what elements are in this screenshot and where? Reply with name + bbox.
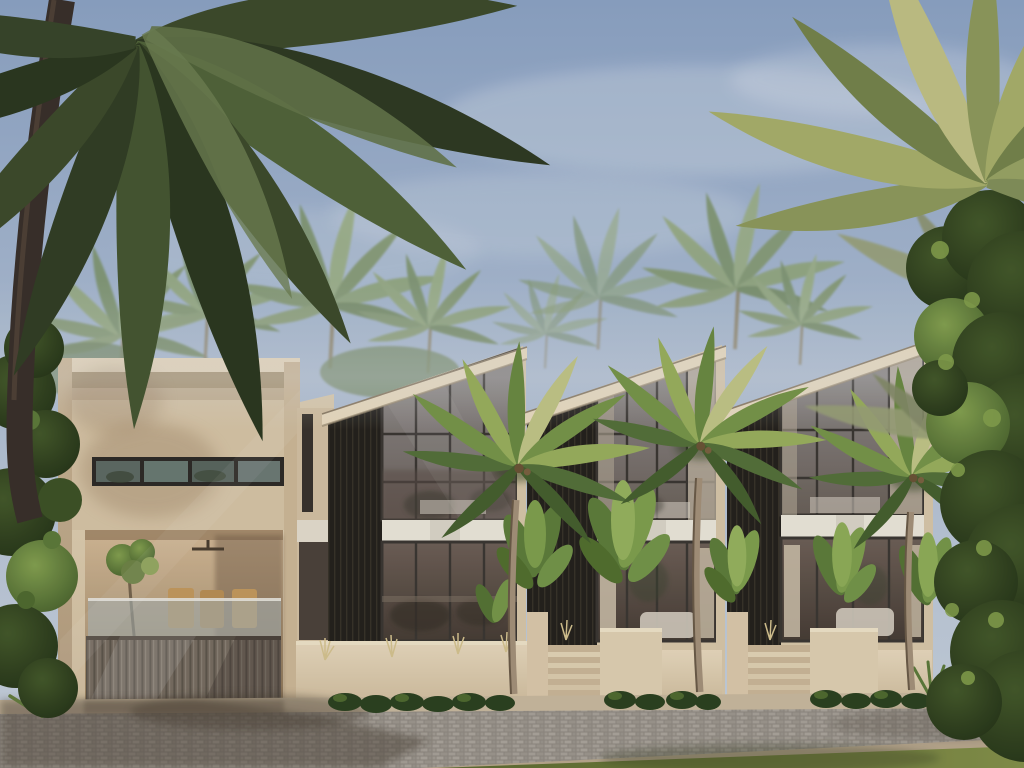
architectural-render [0,0,1024,768]
vignette [0,0,1024,768]
